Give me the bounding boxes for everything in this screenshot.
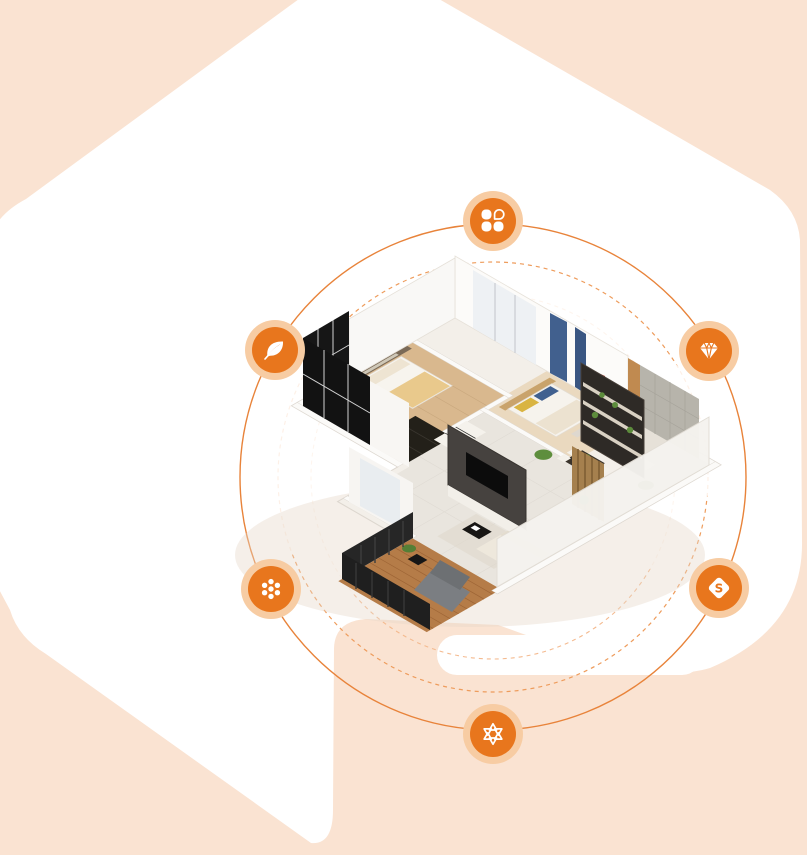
feature-icons: S (0, 0, 807, 855)
triangles-icon[interactable] (470, 711, 516, 757)
hero-section: S (0, 0, 807, 855)
svg-text:S: S (715, 581, 724, 595)
leaf-icon[interactable] (252, 327, 298, 373)
s-gem-icon[interactable]: S (696, 565, 742, 611)
gem-icon[interactable] (686, 328, 732, 374)
dots-icon[interactable] (248, 566, 294, 612)
clover-icon[interactable] (470, 198, 516, 244)
